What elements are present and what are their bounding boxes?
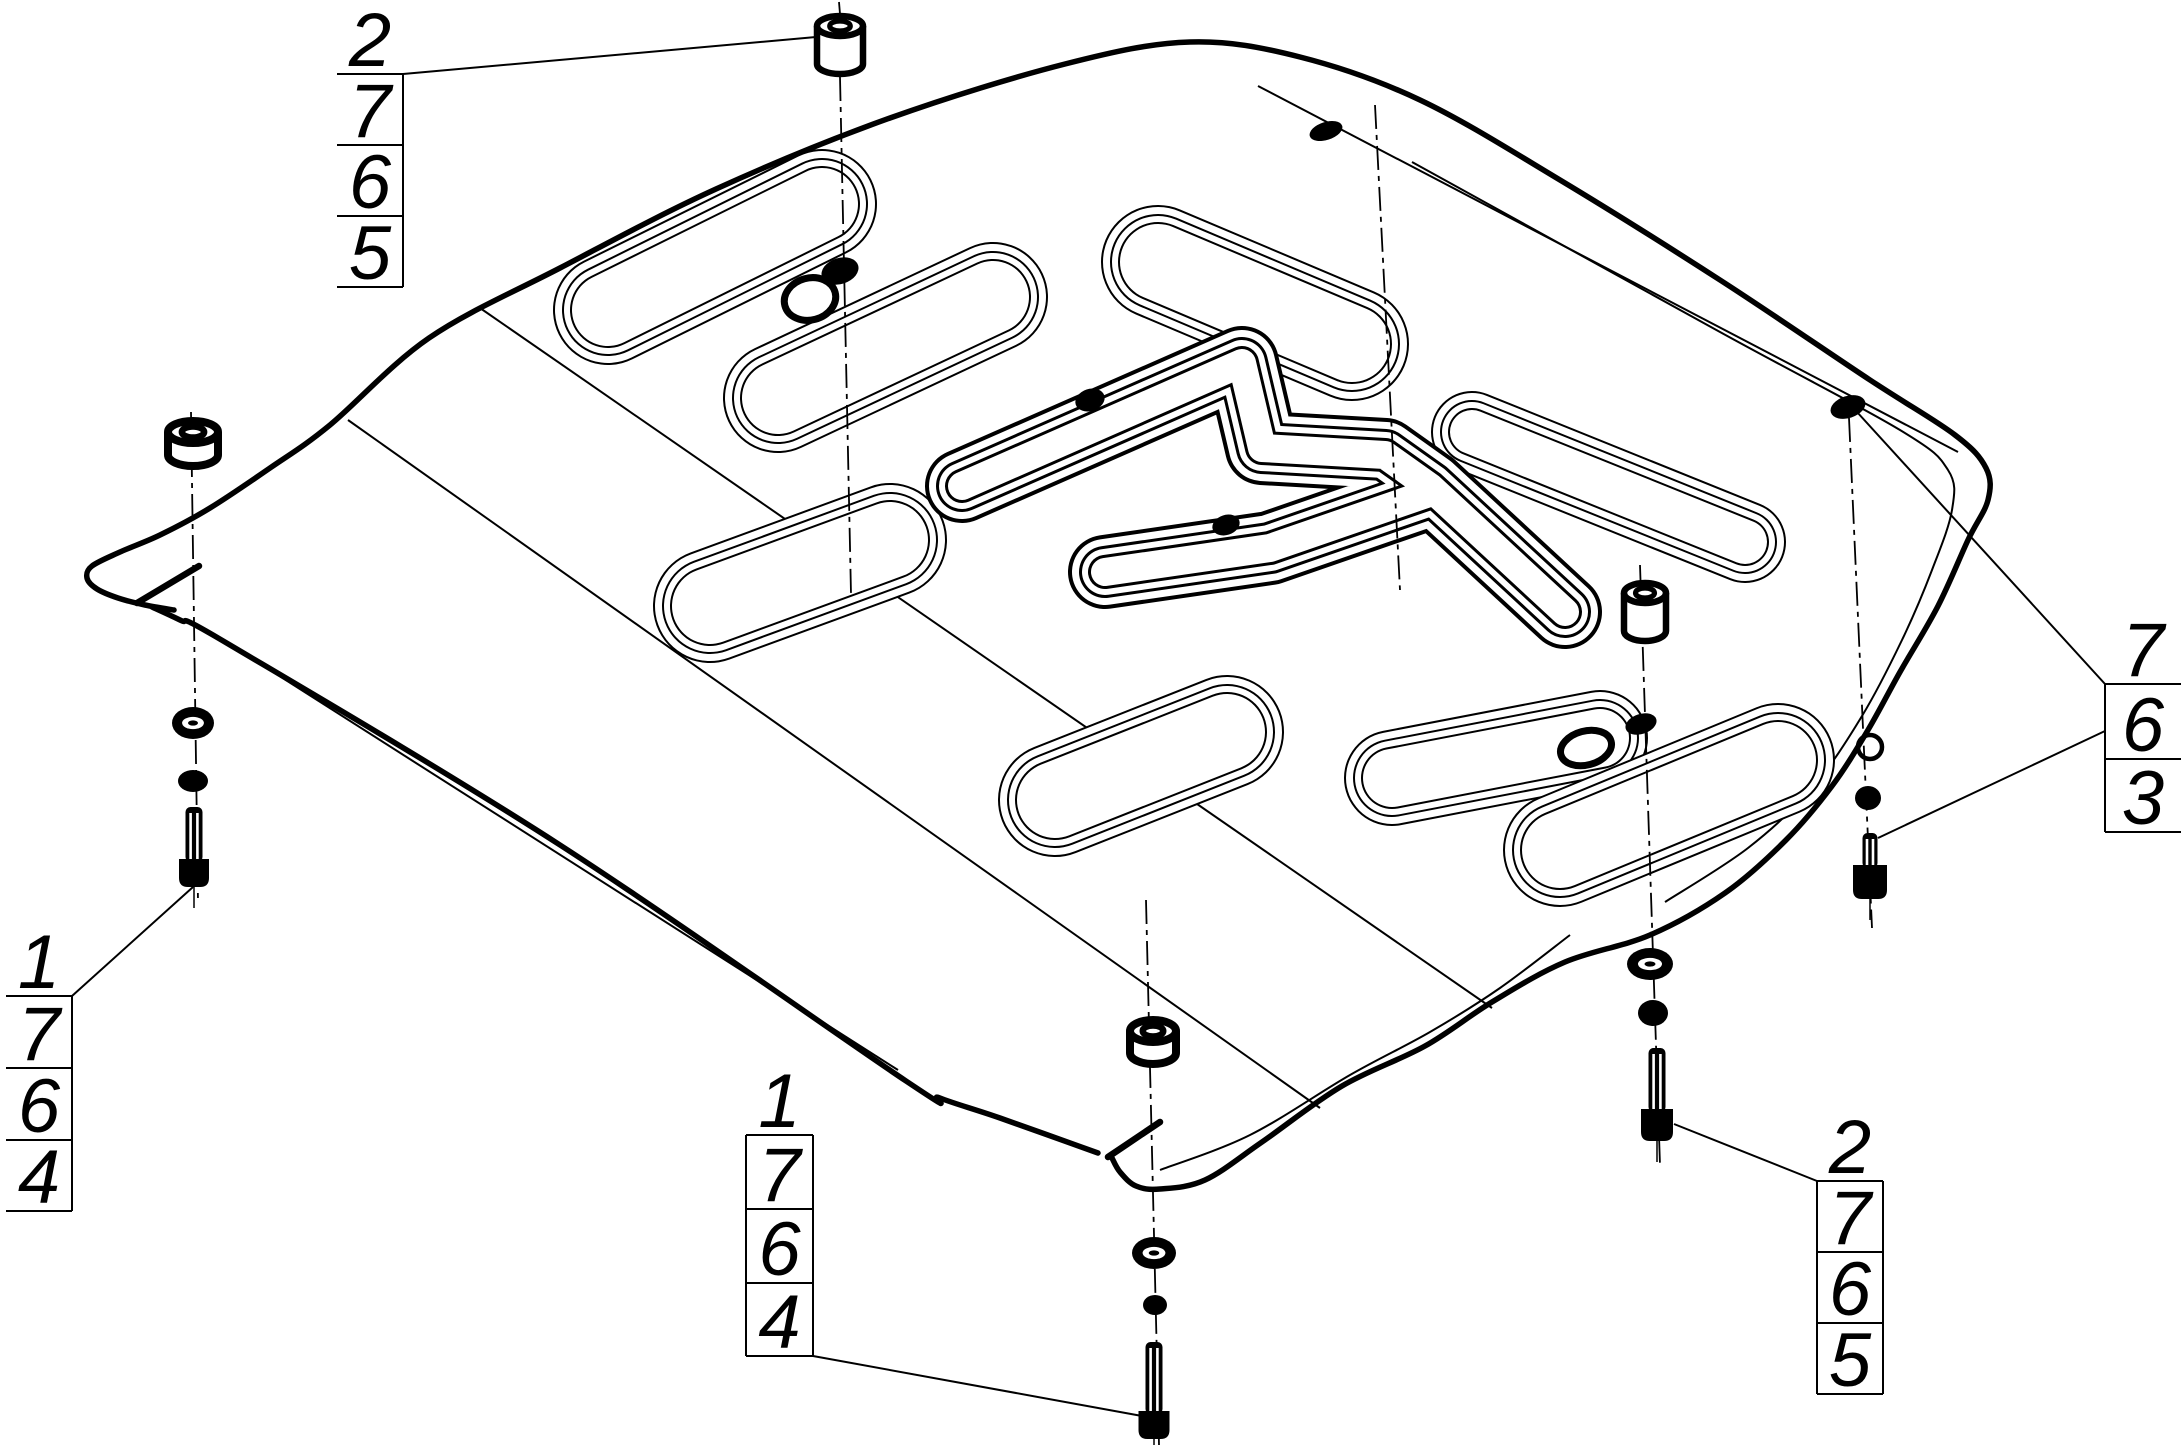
svg-text:7: 7 [758,1133,803,1218]
svg-text:5: 5 [349,211,392,296]
svg-text:5: 5 [1829,1318,1872,1403]
svg-text:4: 4 [758,1280,800,1365]
svg-text:1: 1 [758,1059,800,1144]
svg-text:7: 7 [2122,608,2167,693]
svg-text:3: 3 [2122,756,2164,841]
svg-text:4: 4 [18,1135,60,1220]
